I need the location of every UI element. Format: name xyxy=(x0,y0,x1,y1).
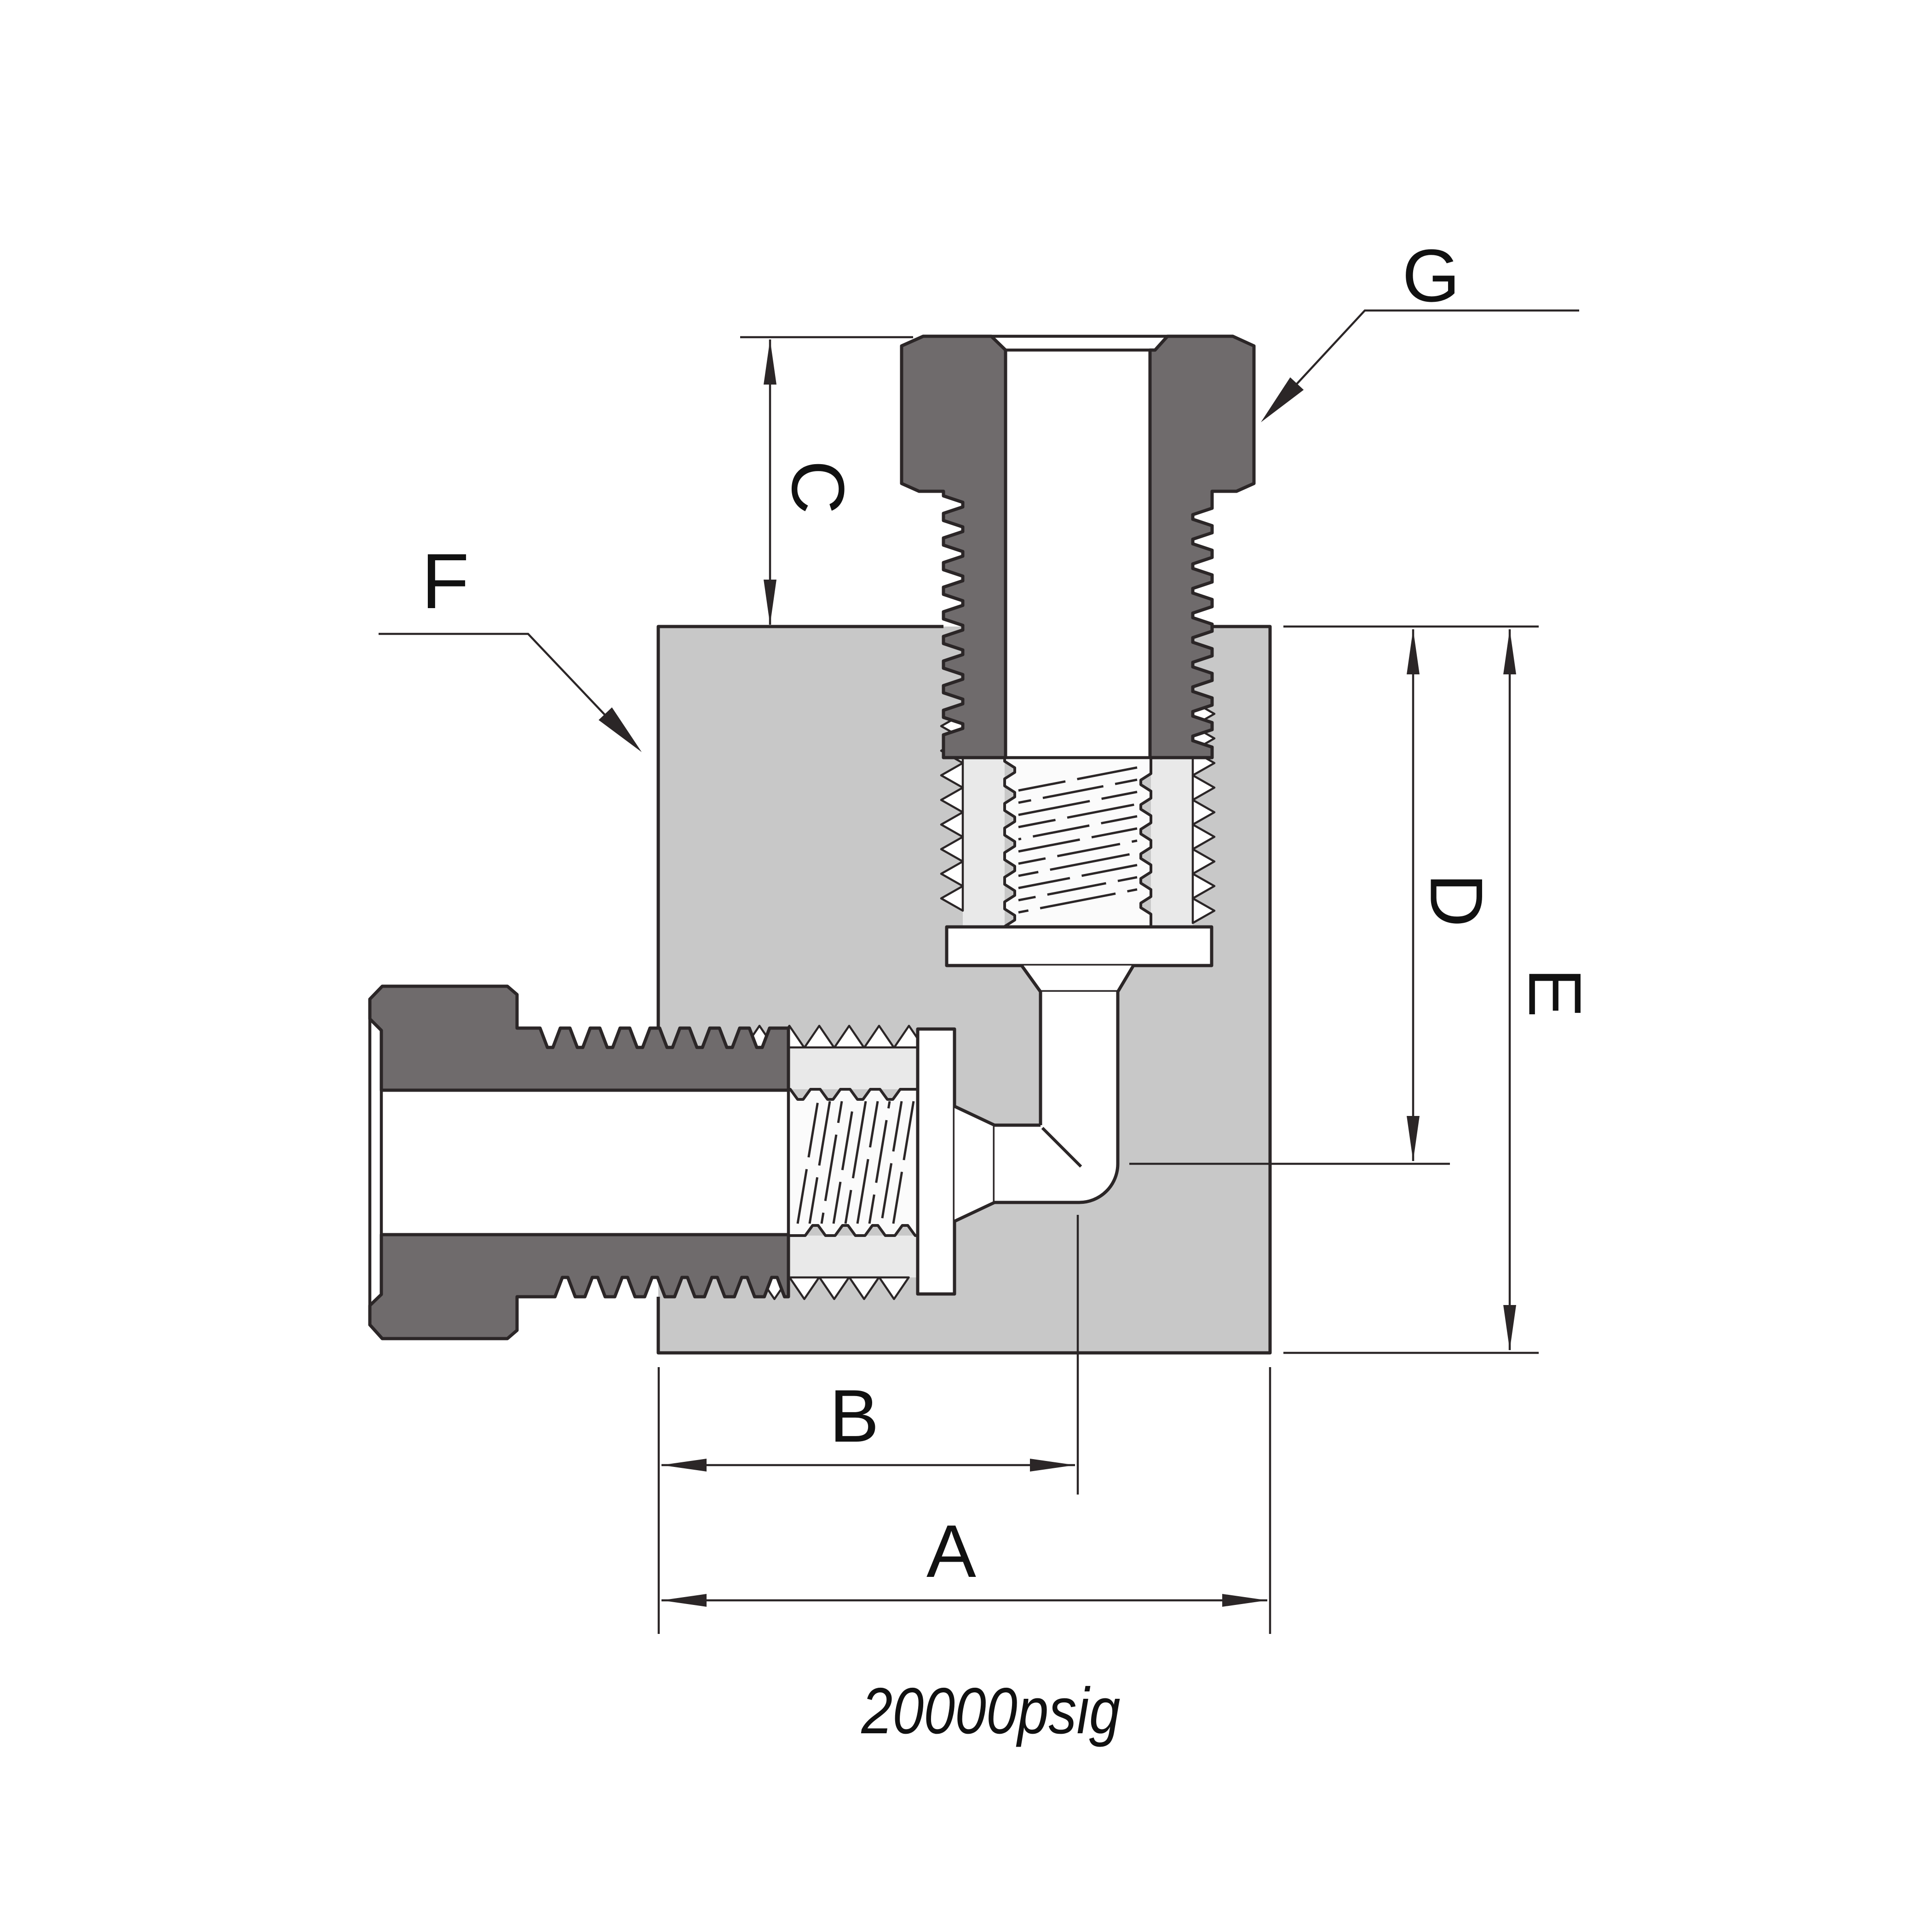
svg-text:C: C xyxy=(776,460,860,514)
svg-text:D: D xyxy=(1415,874,1498,927)
svg-text:G: G xyxy=(1402,234,1460,317)
svg-text:A: A xyxy=(926,1510,976,1593)
svg-text:B: B xyxy=(829,1374,879,1458)
svg-text:F: F xyxy=(421,538,469,625)
svg-text:E: E xyxy=(1513,968,1597,1018)
svg-text:20000psig: 20000psig xyxy=(861,1674,1121,1748)
